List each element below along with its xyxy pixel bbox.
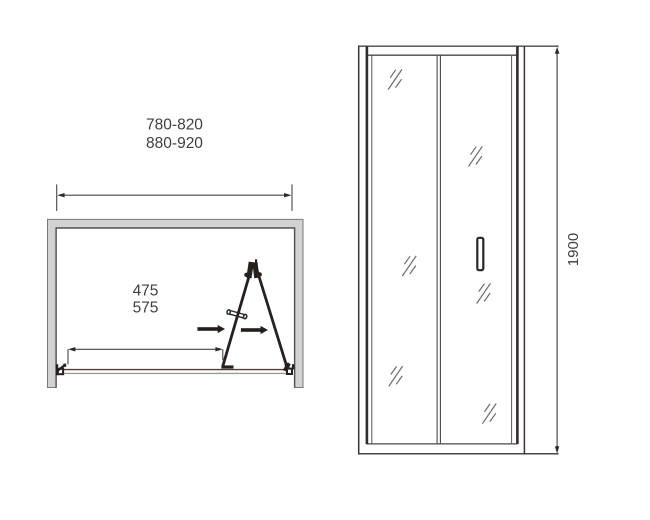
svg-text:1900: 1900 xyxy=(565,233,582,266)
svg-text:780-820: 780-820 xyxy=(146,116,203,133)
svg-text:880-920: 880-920 xyxy=(146,135,203,152)
svg-text:575: 575 xyxy=(133,300,159,317)
svg-text:475: 475 xyxy=(133,282,159,299)
